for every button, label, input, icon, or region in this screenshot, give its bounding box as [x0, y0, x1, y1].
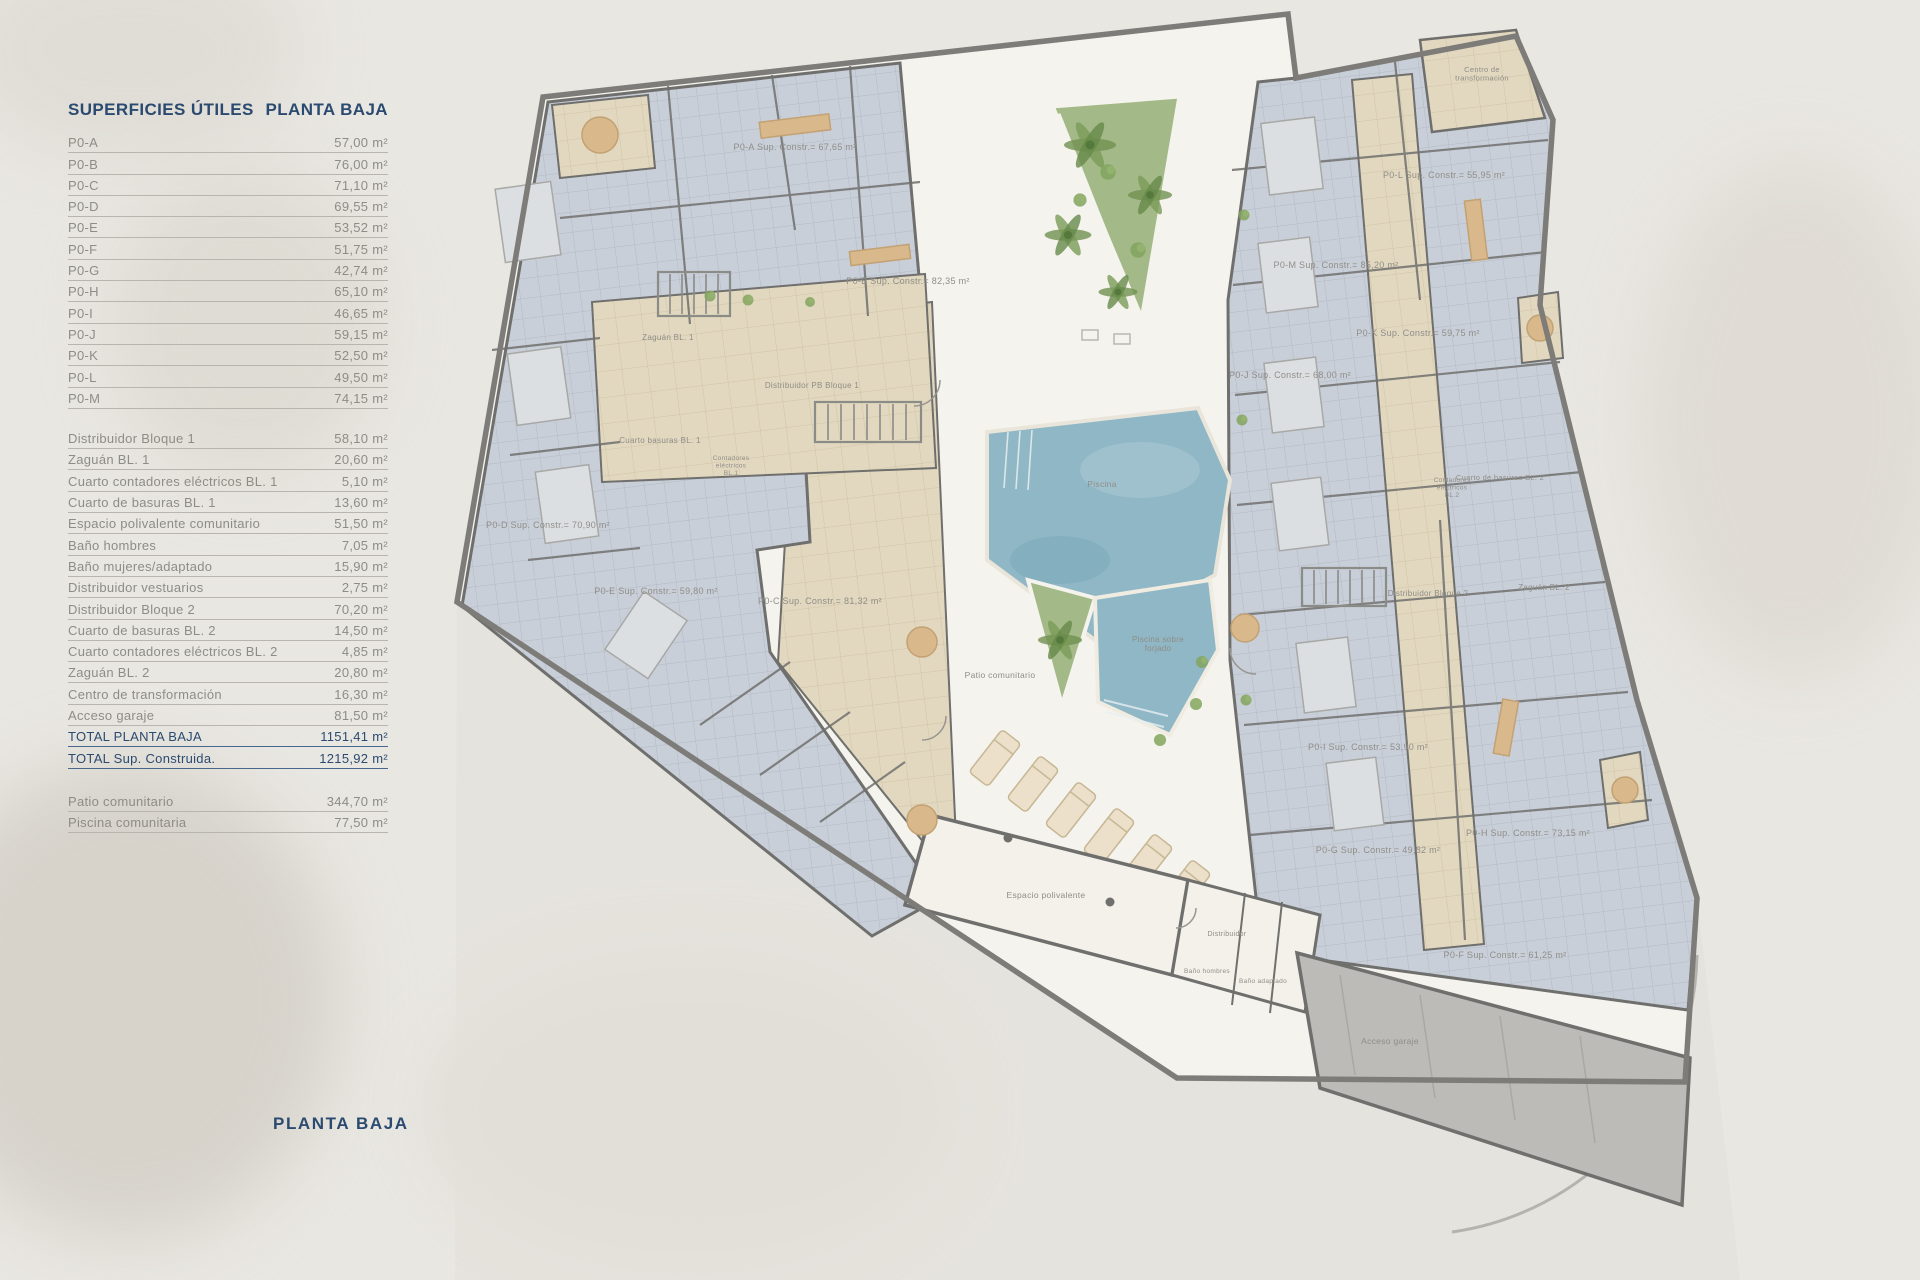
- table-row: Centro de transformación16,30 m²: [68, 683, 388, 704]
- table-subtitle: PLANTA BAJA: [266, 100, 388, 120]
- row-value: 1215,92 m²: [319, 751, 388, 766]
- row-label: Cuarto contadores eléctricos BL. 1: [68, 474, 278, 489]
- row-label: P0-B: [68, 157, 98, 172]
- row-value: 42,74 m²: [334, 263, 388, 278]
- row-value: 57,00 m²: [334, 135, 388, 150]
- plan-label: P0-J Sup. Constr.= 68,00 m²: [1229, 370, 1351, 380]
- bush-icon: [1073, 193, 1086, 206]
- row-value: 5,10 m²: [342, 474, 388, 489]
- table-row: P0-G42,74 m²: [68, 260, 388, 281]
- bush-icon: [1196, 656, 1208, 668]
- row-value: 7,05 m²: [342, 538, 388, 553]
- row-label: P0-J: [68, 327, 96, 342]
- row-value: 59,15 m²: [334, 327, 388, 342]
- plan-label: Baño adaptado: [1239, 978, 1287, 985]
- plan-label: Acceso garaje: [1361, 1036, 1419, 1046]
- table-row: P0-B76,00 m²: [68, 153, 388, 174]
- row-value: 53,52 m²: [334, 220, 388, 235]
- bush-icon: [1190, 698, 1202, 710]
- plan-label: P0-E Sup. Constr.= 59,80 m²: [594, 586, 717, 596]
- row-label: P0-H: [68, 284, 99, 299]
- row-value: 15,90 m²: [334, 559, 388, 574]
- row-label: P0-E: [68, 220, 98, 235]
- plan-title: PLANTA BAJA: [273, 1114, 409, 1134]
- row-value: 14,50 m²: [334, 623, 388, 638]
- table-row: P0-K52,50 m²: [68, 345, 388, 366]
- row-label: P0-G: [68, 263, 100, 278]
- row-label: Distribuidor Bloque 2: [68, 602, 195, 617]
- table-row: Zaguán BL. 220,80 m²: [68, 662, 388, 683]
- plan-label: P0-G Sup. Constr.= 49,82 m²: [1316, 845, 1440, 855]
- table-row: P0-A57,00 m²: [68, 132, 388, 153]
- table-row: Baño mujeres/adaptado15,90 m²: [68, 556, 388, 577]
- row-label: Baño hombres: [68, 538, 156, 553]
- plan-label: Espacio polivalente: [1007, 890, 1086, 900]
- table-row: Zaguán BL. 120,60 m²: [68, 449, 388, 470]
- row-label: P0-I: [68, 306, 93, 321]
- plan-label: P0-D Sup. Constr.= 70,90 m²: [486, 520, 610, 530]
- total-rows: TOTAL PLANTA BAJA1151,41 m²TOTAL Sup. Co…: [68, 726, 388, 769]
- plan-label: Piscina: [1087, 479, 1117, 489]
- row-value: 20,80 m²: [334, 665, 388, 680]
- row-value: 77,50 m²: [334, 815, 388, 830]
- row-label: P0-K: [68, 348, 98, 363]
- table-row: Acceso garaje81,50 m²: [68, 705, 388, 726]
- table-row: P0-L49,50 m²: [68, 366, 388, 387]
- row-value: 58,10 m²: [334, 431, 388, 446]
- row-value: 51,75 m²: [334, 242, 388, 257]
- table-row: Distribuidor Bloque 270,20 m²: [68, 598, 388, 619]
- plan-label: Distribuidor: [1208, 931, 1247, 938]
- bush-icon: [1130, 242, 1145, 257]
- row-value: 4,85 m²: [342, 644, 388, 659]
- row-value: 2,75 m²: [342, 580, 388, 595]
- row-label: Zaguán BL. 2: [68, 665, 150, 680]
- row-label: P0-D: [68, 199, 99, 214]
- table-row: Cuarto de basuras BL. 113,60 m²: [68, 492, 388, 513]
- outdoor-rows: Patio comunitario344,70 m²Piscina comuni…: [68, 791, 388, 834]
- row-value: 52,50 m²: [334, 348, 388, 363]
- plan-label: P0-M Sup. Constr.= 85,20 m²: [1274, 260, 1399, 270]
- row-label: Cuarto de basuras BL. 2: [68, 623, 216, 638]
- row-label: Cuarto contadores eléctricos BL. 2: [68, 644, 278, 659]
- row-label: Piscina comunitaria: [68, 815, 186, 830]
- row-value: 20,60 m²: [334, 452, 388, 467]
- plan-label: Patio comunitario: [965, 670, 1036, 680]
- table-row: Baño hombres7,05 m²: [68, 534, 388, 555]
- row-label: P0-M: [68, 391, 100, 406]
- row-label: Distribuidor vestuarios: [68, 580, 204, 595]
- row-label: TOTAL Sup. Construida.: [68, 751, 215, 766]
- row-value: 81,50 m²: [334, 708, 388, 723]
- plan-label: P0-K Sup. Constr.= 59,75 m²: [1356, 328, 1479, 338]
- table-row: Patio comunitario344,70 m²: [68, 791, 388, 812]
- common-area-rows: Distribuidor Bloque 158,10 m²Zaguán BL. …: [68, 428, 388, 726]
- row-value: 71,10 m²: [334, 178, 388, 193]
- plan-label: P0-L Sup. Constr.= 55,95 m²: [1383, 170, 1505, 180]
- table-row: Cuarto contadores eléctricos BL. 24,85 m…: [68, 641, 388, 662]
- row-label: TOTAL PLANTA BAJA: [68, 729, 202, 744]
- plan-label: Distribuidor Bloque 2: [1388, 589, 1469, 598]
- row-value: 1151,41 m²: [320, 729, 388, 744]
- row-value: 51,50 m²: [334, 516, 388, 531]
- row-label: Patio comunitario: [68, 794, 174, 809]
- row-label: Distribuidor Bloque 1: [68, 431, 195, 446]
- row-value: 76,00 m²: [334, 157, 388, 172]
- table-row: P0-D69,55 m²: [68, 196, 388, 217]
- row-value: 69,55 m²: [334, 199, 388, 214]
- table-row: P0-C71,10 m²: [68, 175, 388, 196]
- table-row: P0-E53,52 m²: [68, 217, 388, 238]
- bush-icon: [1100, 164, 1115, 179]
- plan-label: P0-I Sup. Constr.= 53,90 m²: [1308, 742, 1428, 752]
- row-label: Espacio polivalente comunitario: [68, 516, 260, 531]
- row-label: P0-L: [68, 370, 97, 385]
- plan-label: Zaguán BL. 2: [1518, 583, 1570, 592]
- table-row: P0-M74,15 m²: [68, 388, 388, 409]
- table-row: Cuarto de basuras BL. 214,50 m²: [68, 620, 388, 641]
- plan-label: Baño hombres: [1184, 968, 1230, 975]
- plan-label: P0-C Sup. Constr.= 81,32 m²: [758, 596, 882, 606]
- row-value: 344,70 m²: [327, 794, 388, 809]
- plan-label: P0-H Sup. Constr.= 73,15 m²: [1466, 828, 1590, 838]
- row-value: 16,30 m²: [334, 687, 388, 702]
- table-row: TOTAL PLANTA BAJA1151,41 m²: [68, 726, 388, 747]
- row-value: 74,15 m²: [334, 391, 388, 406]
- plan-label: P0-A Sup. Constr.= 67,65 m²: [734, 142, 857, 152]
- plan-label: P0-B Sup. Constr.= 82,35 m²: [846, 276, 969, 286]
- table-row: Distribuidor Bloque 158,10 m²: [68, 428, 388, 449]
- row-label: Baño mujeres/adaptado: [68, 559, 212, 574]
- row-value: 46,65 m²: [334, 306, 388, 321]
- table-row: Distribuidor vestuarios2,75 m²: [68, 577, 388, 598]
- table-row: Piscina comunitaria77,50 m²: [68, 812, 388, 833]
- table-row: Cuarto contadores eléctricos BL. 15,10 m…: [68, 470, 388, 491]
- apartment-rows: P0-A57,00 m²P0-B76,00 m²P0-C71,10 m²P0-D…: [68, 132, 388, 409]
- row-label: Zaguán BL. 1: [68, 452, 150, 467]
- row-label: Centro de transformación: [68, 687, 222, 702]
- row-value: 13,60 m²: [334, 495, 388, 510]
- surface-table: SUPERFICIES ÚTILES PLANTA BAJA P0-A57,00…: [68, 100, 388, 833]
- table-header: SUPERFICIES ÚTILES PLANTA BAJA: [68, 100, 388, 120]
- row-label: Acceso garaje: [68, 708, 154, 723]
- table-row: Espacio polivalente comunitario51,50 m²: [68, 513, 388, 534]
- row-label: P0-A: [68, 135, 98, 150]
- table-row: P0-I46,65 m²: [68, 302, 388, 323]
- plan-label: Zaguán BL. 1: [642, 333, 694, 342]
- table-title: SUPERFICIES ÚTILES: [68, 100, 254, 120]
- table-row: P0-J59,15 m²: [68, 324, 388, 345]
- plan-label: P0-F Sup. Constr.= 61,25 m²: [1444, 950, 1567, 960]
- plan-label: Cuarto basuras BL. 1: [619, 436, 701, 445]
- table-row: P0-F51,75 m²: [68, 238, 388, 259]
- row-label: P0-F: [68, 242, 97, 257]
- bush-icon: [1154, 734, 1166, 746]
- row-label: Cuarto de basuras BL. 1: [68, 495, 216, 510]
- row-value: 70,20 m²: [334, 602, 388, 617]
- row-label: P0-C: [68, 178, 99, 193]
- row-value: 65,10 m²: [334, 284, 388, 299]
- row-value: 49,50 m²: [334, 370, 388, 385]
- table-row: P0-H65,10 m²: [68, 281, 388, 302]
- plan-label: Distribuidor PB Bloque 1: [765, 381, 860, 390]
- table-row: TOTAL Sup. Construida.1215,92 m²: [68, 747, 388, 768]
